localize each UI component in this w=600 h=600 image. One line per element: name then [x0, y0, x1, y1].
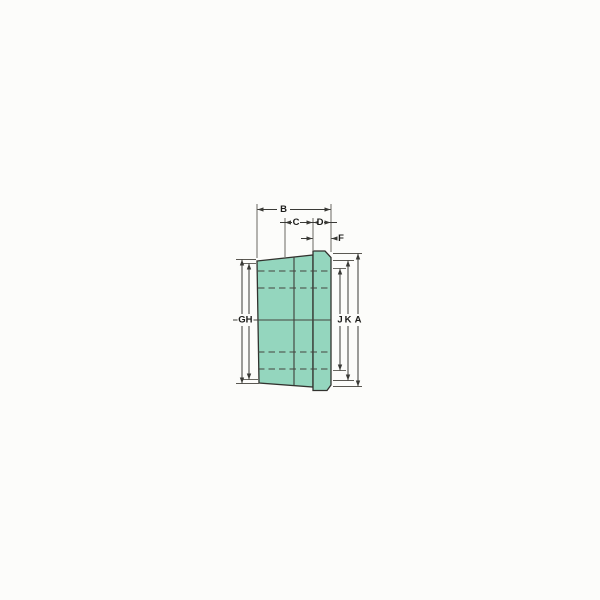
dimension-h: H — [246, 264, 253, 380]
arrow-f-right — [332, 236, 338, 240]
arrow-h-top — [247, 264, 251, 270]
arrow-k-bottom — [346, 375, 350, 381]
arrow-h-bottom — [247, 374, 251, 380]
dimension-a: A — [355, 254, 362, 387]
label-c: C — [293, 217, 300, 228]
label-d: D — [317, 217, 324, 228]
dimension-b: B — [258, 204, 331, 215]
dimension-j: J — [337, 269, 342, 371]
bushing-dimension-drawing: B C D F G H — [0, 0, 600, 600]
label-a: A — [355, 315, 362, 326]
dimension-k: K — [345, 261, 352, 381]
label-k: K — [345, 315, 352, 326]
arrow-a-top — [356, 254, 360, 260]
label-j: J — [337, 315, 342, 326]
arrow-j-top — [338, 269, 342, 275]
arrow-a-bottom — [356, 381, 360, 387]
arrow-f-left — [307, 236, 313, 240]
arrow-g-bottom — [240, 378, 244, 384]
arrow-c-right — [307, 220, 313, 224]
label-f: F — [338, 233, 344, 244]
arrow-g-top — [240, 260, 244, 266]
arrow-c-left — [285, 220, 291, 224]
bushing-body — [257, 255, 313, 387]
arrow-j-bottom — [338, 365, 342, 371]
label-h: H — [246, 315, 253, 326]
arrow-b-left — [258, 207, 264, 211]
label-b: B — [280, 204, 287, 215]
arrow-k-top — [346, 261, 350, 267]
dimension-f: F — [301, 233, 344, 244]
arrow-b-right — [325, 207, 331, 211]
drawing-canvas: B C D F G H — [0, 0, 600, 600]
arrow-d-right — [325, 220, 331, 224]
bushing-flange — [313, 251, 331, 391]
dimension-c-d: C D — [280, 217, 337, 228]
